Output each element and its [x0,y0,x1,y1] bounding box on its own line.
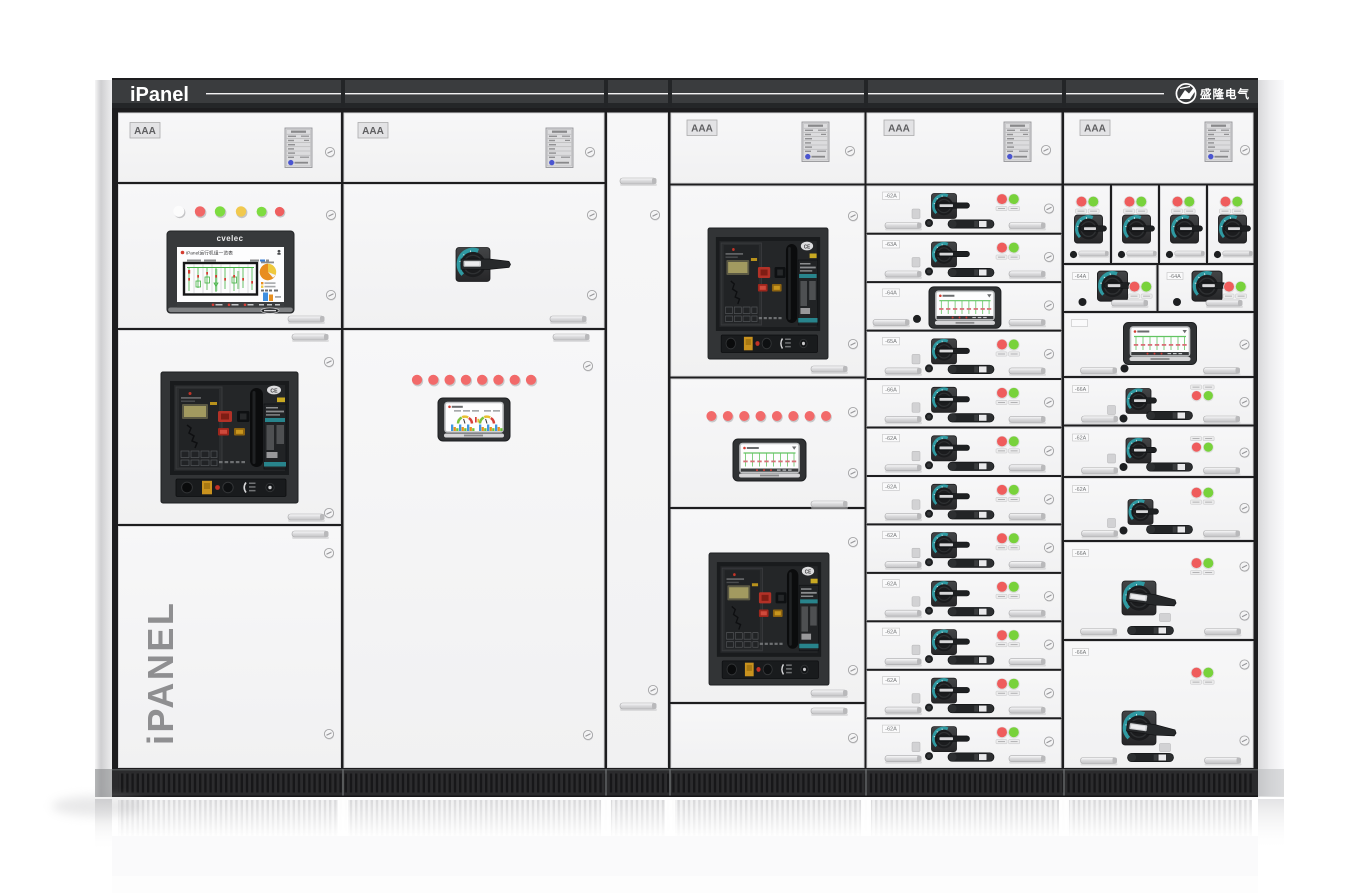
svg-text:-65A: -65A [885,339,897,345]
svg-text:-62A: -62A [885,484,897,490]
svg-text:-62A: -62A [885,581,897,587]
svg-text:-62A: -62A [1075,487,1087,493]
svg-text:-64A: -64A [885,291,897,297]
svg-text:-62A: -62A [885,194,897,200]
svg-text:-62A: -62A [885,436,897,442]
svg-text:iPANEL: iPANEL [140,601,181,745]
svg-text:盛隆电气: 盛隆电气 [1200,87,1250,101]
svg-text:-66A: -66A [885,387,897,393]
svg-text:-66A: -66A [1075,650,1087,656]
svg-text:-64A: -64A [1169,274,1181,280]
svg-text:-63A: -63A [885,242,897,248]
svg-text:-64A: -64A [1075,274,1087,280]
svg-text:-62A: -62A [1075,435,1087,441]
svg-text:-62A: -62A [885,727,897,733]
svg-text:-66A: -66A [1075,387,1087,393]
svg-text:-62A: -62A [885,533,897,539]
svg-text:-62A: -62A [885,630,897,636]
svg-text:-66A: -66A [1075,551,1087,557]
svg-text:-62A: -62A [885,678,897,684]
svg-text:iPanel: iPanel [130,84,189,106]
